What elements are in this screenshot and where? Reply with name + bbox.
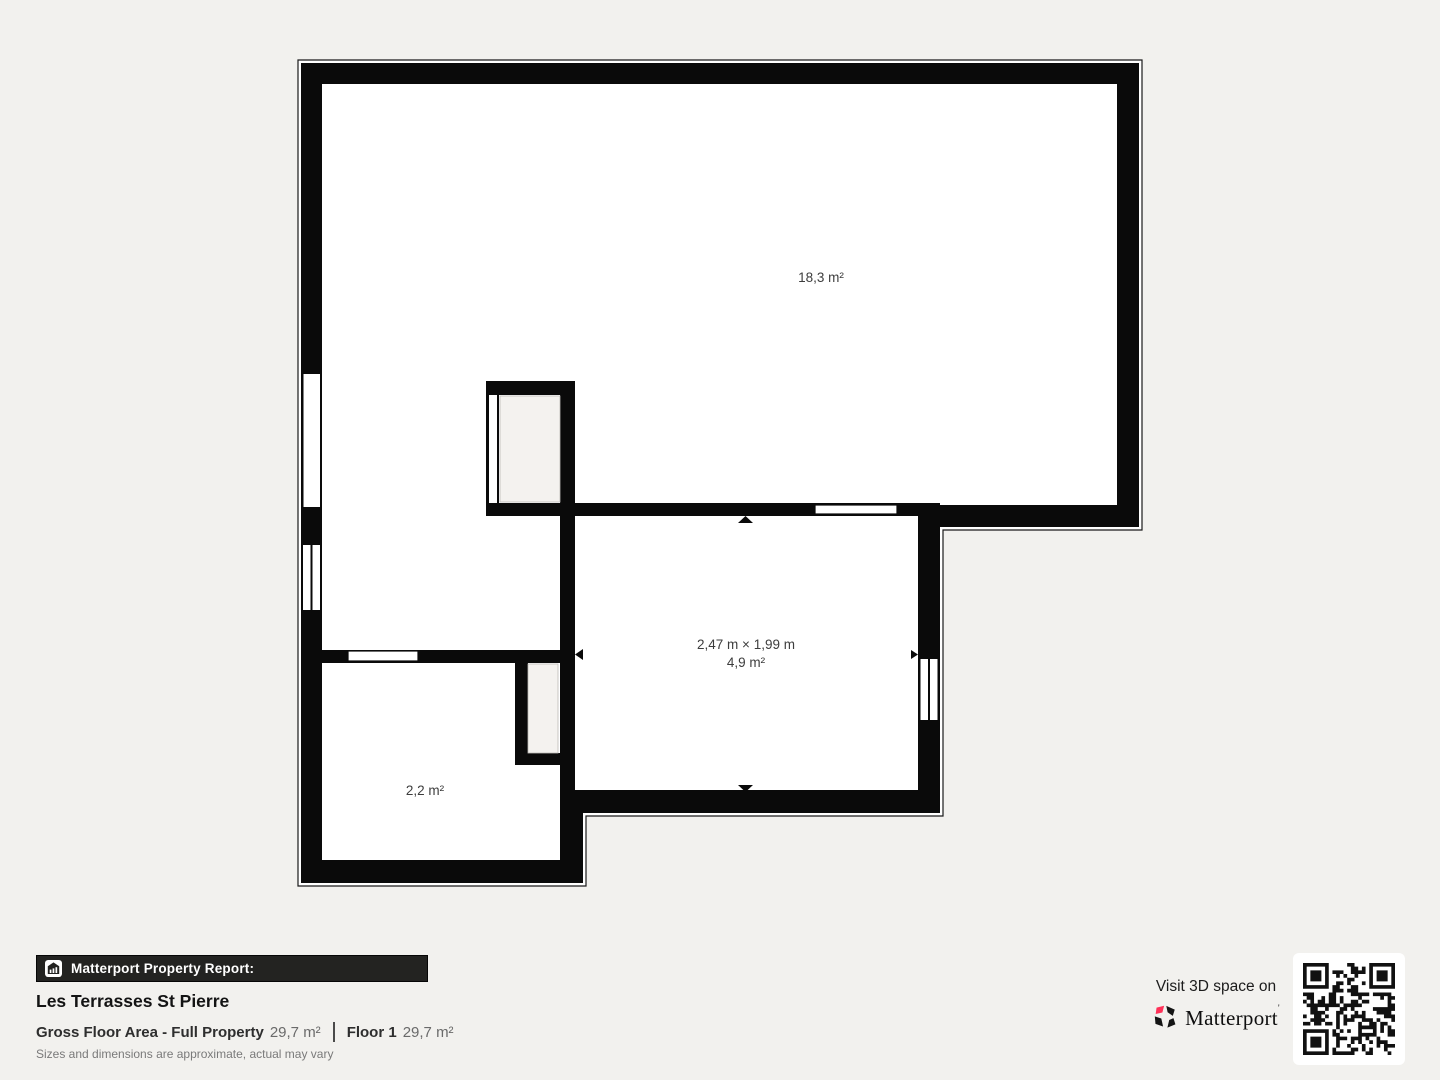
property-name: Les Terrasses St Pierre <box>36 991 229 1012</box>
large-room-area-label: 18,3 m² <box>798 270 844 285</box>
wall-opening-top <box>815 505 897 514</box>
matterport-logo-icon <box>1152 1004 1178 1030</box>
wall-opening-small-room <box>348 651 418 661</box>
metrics-divider <box>333 1022 335 1042</box>
middle-room-dimensions-label: 2,47 m × 1,99 m <box>697 637 795 652</box>
qr-code-card <box>1293 953 1405 1065</box>
gross-floor-area-label: Gross Floor Area - Full Property <box>36 1024 264 1041</box>
small-room-area-label: 2,2 m² <box>406 783 445 798</box>
upper-shaft <box>500 396 560 502</box>
visit-3d-space-label: Visit 3D space on <box>1140 978 1292 996</box>
window-left-large <box>304 374 321 507</box>
qr-code-icon <box>1303 963 1395 1055</box>
lower-shaft <box>528 664 558 753</box>
report-bar-label: Matterport Property Report: <box>71 961 254 976</box>
middle-room-area-label: 4,9 m² <box>727 655 766 670</box>
matterport-brand: Matterport' <box>1140 1003 1292 1031</box>
floor-label: Floor 1 <box>347 1024 397 1041</box>
visit-3d-space-block: Visit 3D space on Matterport' <box>1140 978 1292 1031</box>
floor-plan: 18,3 m² 2,47 m × 1,99 m 4,9 m² 2,2 m² <box>0 0 1440 1080</box>
gross-floor-area-value: 29,7 m² <box>270 1024 321 1041</box>
property-report-page: 18,3 m² 2,47 m × 1,99 m 4,9 m² 2,2 m² Ma… <box>0 0 1440 1080</box>
house-with-bars-icon <box>45 960 62 977</box>
floor-value: 29,7 m² <box>403 1024 454 1041</box>
floor-area-metrics: Gross Floor Area - Full Property 29,7 m²… <box>36 1021 454 1043</box>
matterport-wordmark: Matterport' <box>1185 1003 1280 1031</box>
building-footprint <box>298 60 1142 886</box>
disclaimer-text: Sizes and dimensions are approximate, ac… <box>36 1047 333 1061</box>
report-title-bar: Matterport Property Report: <box>36 955 428 982</box>
